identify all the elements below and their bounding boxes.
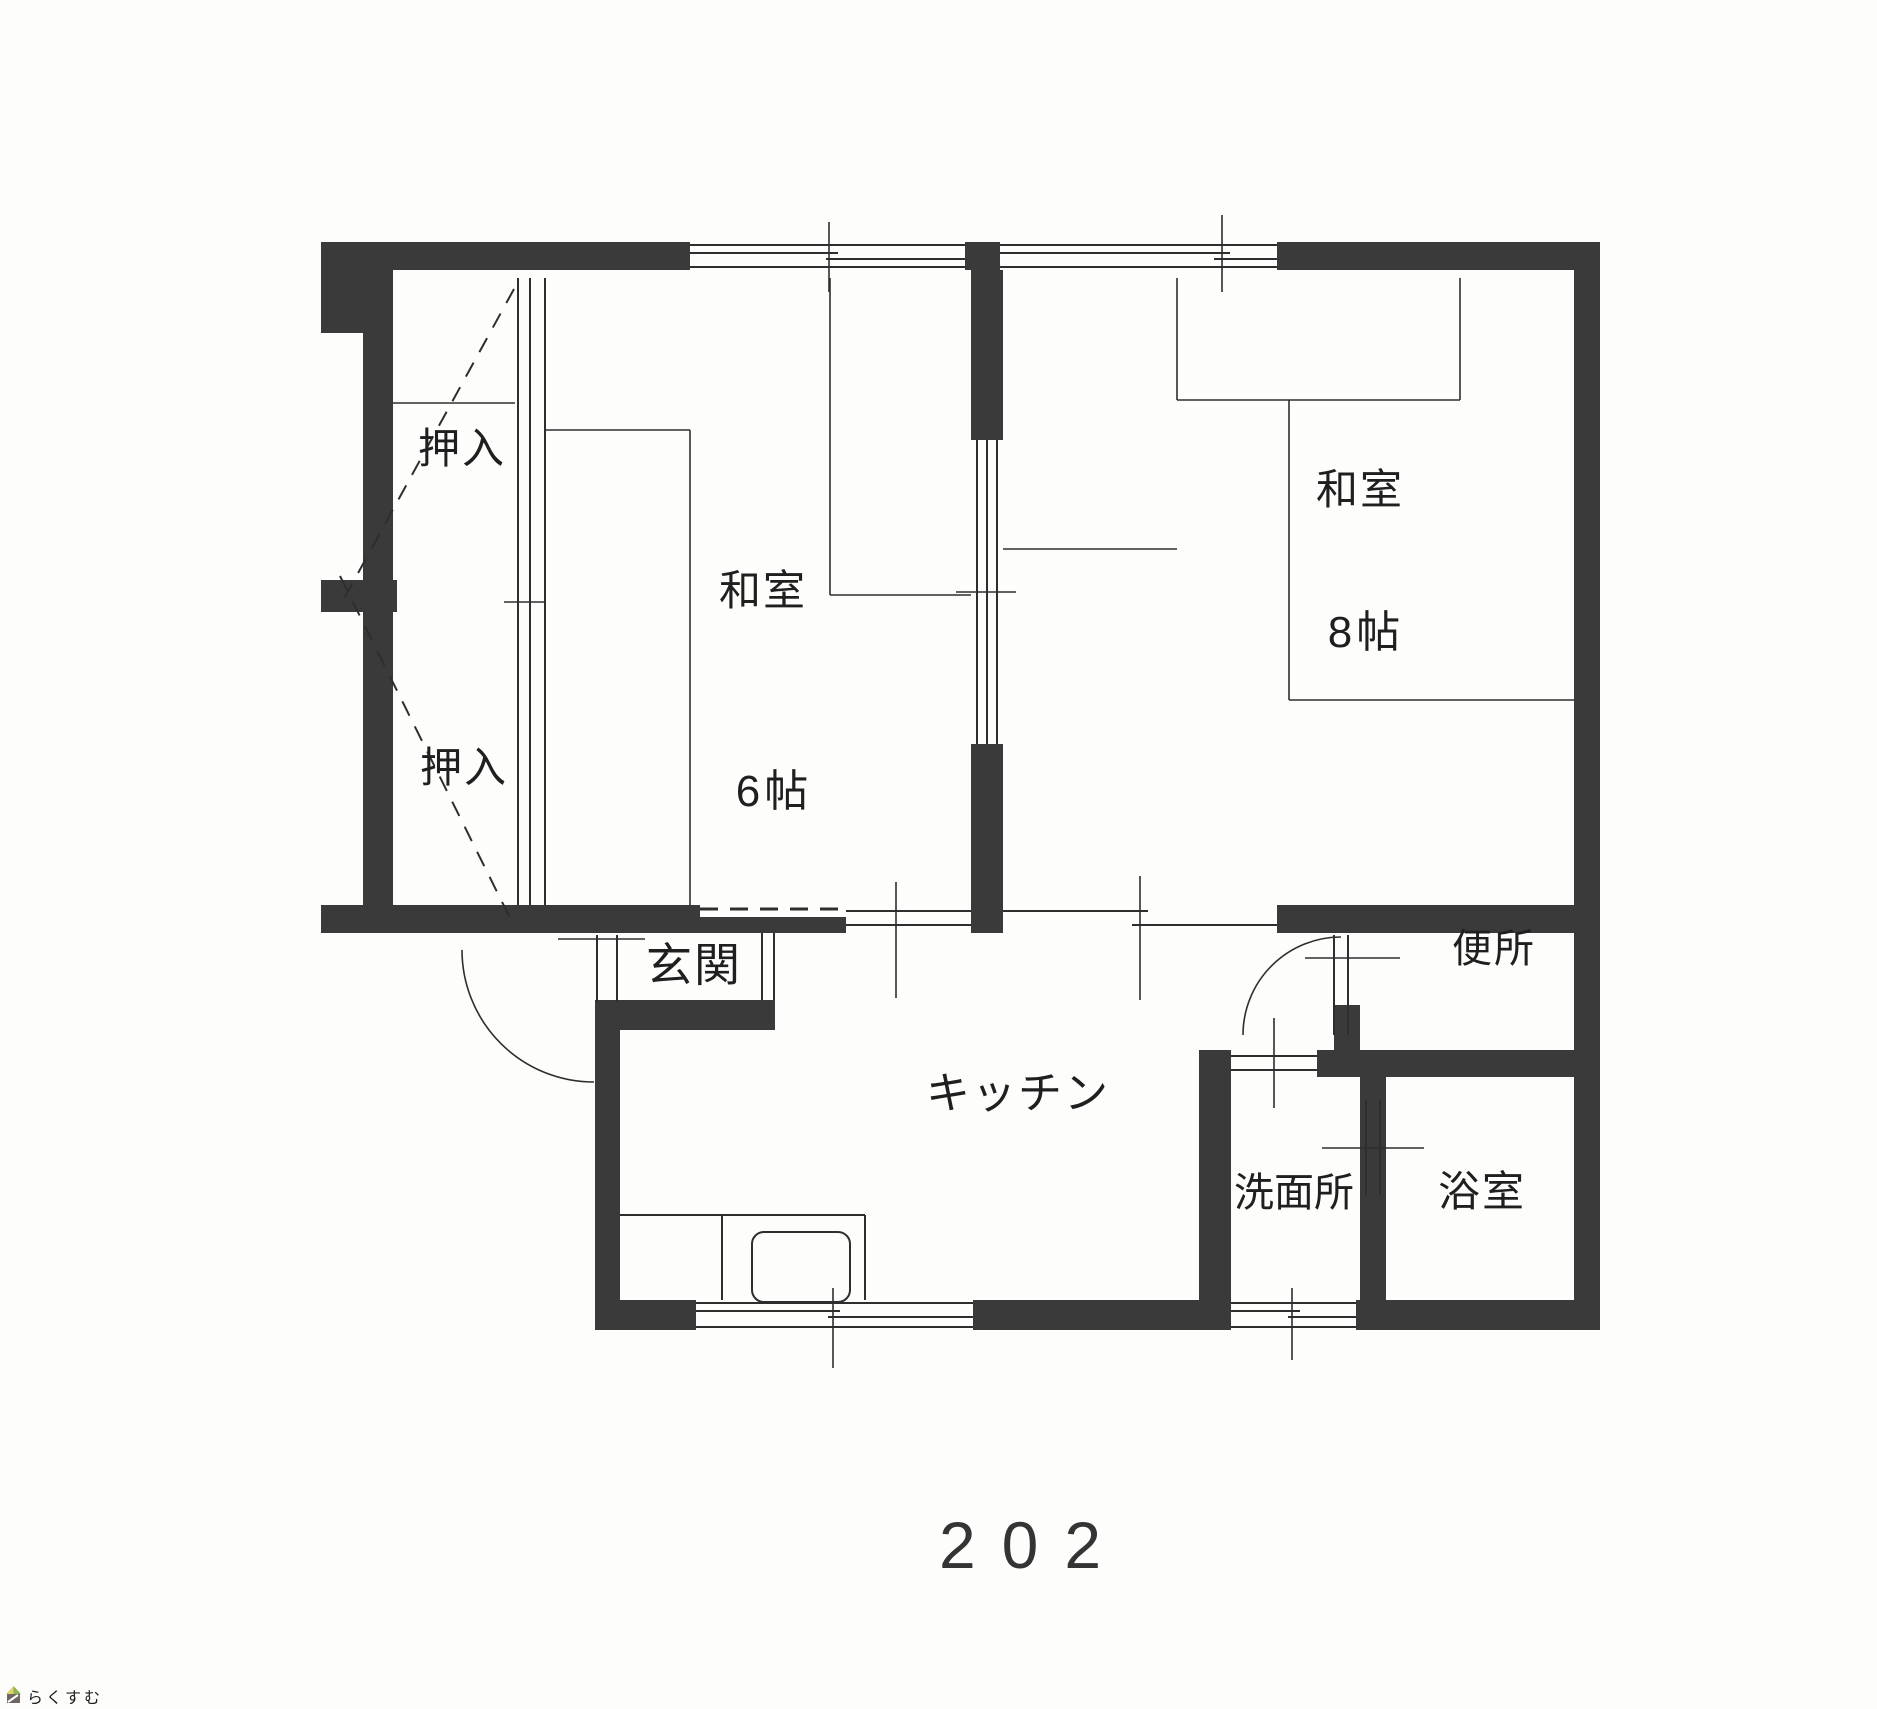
walls	[321, 242, 1600, 1330]
label-washitsu6: 和室	[719, 567, 807, 614]
watermark-house-roof-right-icon	[14, 1686, 22, 1694]
window-bottom-kitchen	[696, 1300, 973, 1330]
wall-kitchen-left	[595, 1030, 620, 1300]
window-top-6jo	[690, 242, 965, 270]
wall-washroom-bath	[1360, 1077, 1386, 1300]
wall-closet-divider-stub	[321, 580, 397, 612]
label-washitsu8-size: 8帖	[1328, 608, 1404, 657]
label-bathroom: 浴室	[1438, 1168, 1526, 1215]
wall-room-divider-top	[971, 270, 1003, 440]
unit-number: 202	[939, 1508, 1127, 1582]
opening-6jo-kitchen	[846, 905, 971, 933]
window-top-8jo	[1000, 242, 1277, 270]
label-washitsu6-size: 6帖	[736, 767, 812, 816]
floorplan-drawing: 押入 押入 和室 6帖 和室 8帖 玄関 キッチン 便所 洗面所 浴室 202 …	[0, 0, 1877, 1709]
kitchen-counter	[620, 1215, 865, 1302]
window-bottom-washroom	[1231, 1300, 1356, 1330]
watermark: らくすむ	[6, 1686, 103, 1707]
kitchen-sink	[752, 1232, 850, 1302]
watermark-house-roof-left-icon	[6, 1686, 14, 1694]
sliding-doors	[504, 278, 1424, 1195]
label-washitsu8: 和室	[1316, 466, 1404, 513]
wall-under-sliding-door	[700, 917, 846, 933]
wall-genkan-bottom	[595, 1000, 775, 1030]
label-toilet: 便所	[1452, 927, 1536, 971]
wall-kitchen-washroom	[1199, 1050, 1231, 1300]
wall-right	[1574, 242, 1600, 1330]
entrance-door-arc	[462, 950, 594, 1082]
label-closet-top: 押入	[418, 425, 506, 472]
floorplan-page: 押入 押入 和室 6帖 和室 8帖 玄関 キッチン 便所 洗面所 浴室 202 …	[0, 0, 1877, 1709]
label-kitchen: キッチン	[926, 1069, 1110, 1118]
wall-room-divider-bottom	[971, 744, 1003, 905]
label-washroom: 洗面所	[1234, 1171, 1354, 1215]
label-genkan: 玄関	[646, 939, 742, 991]
wall-under-toilet	[1317, 1050, 1600, 1077]
toilet-door-arc	[1243, 937, 1341, 1035]
watermark-text: らくすむ	[27, 1689, 103, 1707]
label-closet-bottom: 押入	[420, 744, 508, 791]
